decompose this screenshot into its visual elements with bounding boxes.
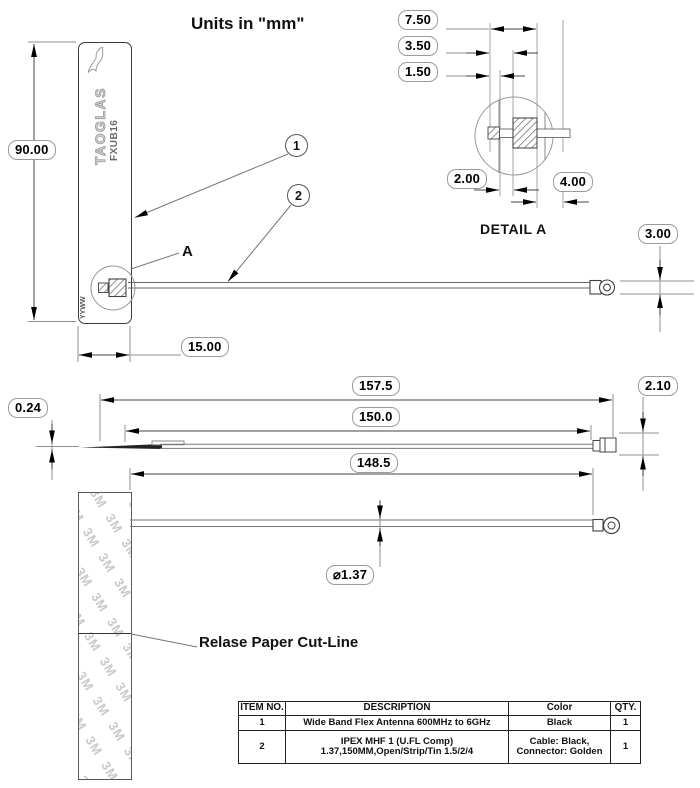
technical-drawing-page: TAOGLAS FXUB16 YYWW 3M 3M 3M 3M 3M 3M 3M… <box>0 0 700 788</box>
bottom-view-cable <box>130 518 620 534</box>
bom-row1-color: Black <box>509 716 611 731</box>
dim-detail-400: 4.00 <box>553 172 593 192</box>
bom-row2-qty: 1 <box>611 731 641 764</box>
front-view-dim-90 <box>28 42 76 322</box>
bom-row1-qty: 1 <box>611 716 641 731</box>
bom-row1-desc-line1: Wide Band Flex Antenna 600MHz to 6GHz <box>303 718 490 728</box>
bom-header-qty: QTY. <box>611 702 641 716</box>
dim-board-thickness: 0.24 <box>8 398 48 418</box>
bom-row2-item-no: 2 <box>239 731 286 764</box>
detail-a-title: DETAIL A <box>480 221 547 237</box>
bom-row2-desc-line2: 1.37,150MM,Open/Strip/Tin 1.5/2/4 <box>321 747 473 757</box>
dim-connector-height: 2.10 <box>638 376 678 396</box>
bom-header-color: Color <box>509 702 611 716</box>
front-view-dim-15 <box>78 326 181 362</box>
dim-cable-diameter: ⌀1.37 <box>326 565 374 585</box>
bom-row2-description: IPEX MHF 1 (U.FL Comp) 1.37,150MM,Open/S… <box>286 731 509 764</box>
bom-header-item-no: ITEM NO. <box>239 702 286 716</box>
dim-detail-750: 7.50 <box>398 10 438 30</box>
callout-item-1: 1 <box>285 134 308 157</box>
dim-total-length: 157.5 <box>352 376 400 396</box>
dim-connector-width: 3.00 <box>638 224 678 244</box>
side-view-dim-210 <box>619 397 659 491</box>
bom-row1-description: Wide Band Flex Antenna 600MHz to 6GHz <box>286 716 509 731</box>
dim-board-width: 15.00 <box>181 337 229 357</box>
dim-board-height: 90.00 <box>8 140 56 160</box>
bom-row1-color-line1: Black <box>547 718 572 728</box>
bom-table: ITEM NO. DESCRIPTION Color QTY. 1 Wide B… <box>238 701 641 764</box>
dim-detail-150: 1.50 <box>398 62 438 82</box>
front-view-cable <box>128 283 594 289</box>
cad-linework <box>0 0 700 788</box>
units-note: Units in "mm" <box>191 14 304 34</box>
side-view-dim-1500 <box>125 425 591 442</box>
callout-leaders <box>131 154 291 282</box>
dim-cable-length: 150.0 <box>352 407 400 427</box>
bom-row1-item-no: 1 <box>239 716 286 731</box>
detail-a-shapes <box>475 97 570 175</box>
bom-header-description: DESCRIPTION <box>286 702 509 716</box>
side-view-antenna-profile <box>80 438 616 452</box>
release-paper-cut-line-label: Relase Paper Cut-Line <box>199 634 358 651</box>
dim-detail-200: 2.00 <box>447 169 487 189</box>
side-view-dim-024 <box>36 420 79 480</box>
dim-open-length: 148.5 <box>350 453 398 473</box>
front-view-dim-3 <box>620 246 694 332</box>
bom-row2-color: Cable: Black, Connector: Golden <box>509 731 611 764</box>
detail-ref-label: A <box>182 243 193 260</box>
bottom-view-dim-1485 <box>130 468 593 515</box>
callout-item-2: 2 <box>287 184 310 207</box>
bom-row2-color-line2: Connector: Golden <box>516 747 602 757</box>
dim-detail-350: 3.50 <box>398 36 438 56</box>
front-view-ipex-connector <box>590 280 615 295</box>
cut-line-leader <box>131 634 197 647</box>
